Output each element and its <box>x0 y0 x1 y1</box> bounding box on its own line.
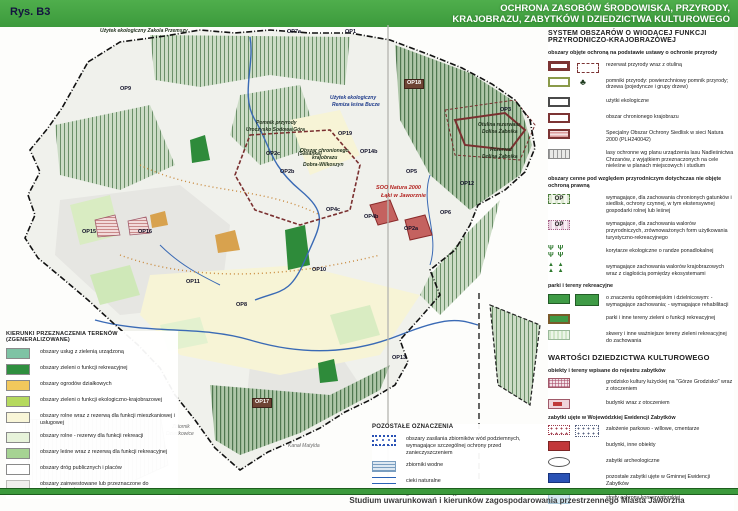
legend-label: obszary rolne wraz z rezerwą dla funkcji… <box>40 412 178 427</box>
legend-row: obszary zasilania zbiorników wód podziem… <box>372 435 548 456</box>
legend-subheader: parki i tereny rekreacyjne <box>548 283 734 290</box>
legend-swatch <box>6 412 30 423</box>
legend-swatch <box>548 399 570 409</box>
scanned-map-page: Rys. B3 OCHRONA ZASOBÓW ŚRODOWISKA, PRZY… <box>0 0 738 511</box>
legend-row: parki i inne tereny zieleni o funkcji re… <box>548 314 734 324</box>
legend-swatch <box>372 435 396 446</box>
legend-swatch: Ψ Ψ Ψ Ψ <box>548 247 570 257</box>
legend-label: obszary dróg publicznych i placów <box>40 464 122 472</box>
legend-swatch <box>548 378 570 388</box>
legend-label: obszary leśne wraz z rezerwą dla funkcji… <box>40 448 167 456</box>
legend-subheader: obszary cenne pod względem przyrodniczym… <box>548 176 734 190</box>
legend-label: obszar chronionego krajobrazu <box>606 113 679 121</box>
legend-swatch <box>548 61 570 71</box>
legend-label: budynki, inne obiekty <box>606 441 655 449</box>
legend-row: o znaczeniu ogólnomiejskim i dzielnicowy… <box>548 294 734 308</box>
legend-label: budynki wraz z otoczeniem <box>606 399 670 407</box>
legend-row: lasy ochronne wg planu urządzenia lasu N… <box>548 149 734 170</box>
legend-row: pozostałe zabytki ujęte w Gminnej Ewiden… <box>548 473 734 487</box>
legend-label: obszary ogrodów działkowych <box>40 380 112 388</box>
legend-label: obszary zieleni o funkcji ekologiczno-kr… <box>40 396 162 404</box>
legend-row: skwery i inne ważniejsze tereny zieleni … <box>548 330 734 344</box>
legend-row: obszary dróg publicznych i placów <box>6 464 178 475</box>
legend-swatch <box>548 425 570 435</box>
legend-label: korytarze ekologiczne o randze ponadloka… <box>606 247 713 255</box>
heritage-title: WARTOŚCI DZIEDZICTWA KULTUROWEGO <box>548 353 734 362</box>
legend-swatch: OP <box>548 194 570 204</box>
legend-swatch <box>6 448 30 459</box>
legend-swatch <box>548 314 570 324</box>
legend-row: obszary usług z zielenią urządzoną <box>6 348 178 359</box>
legend-label: lasy ochronne wg planu urządzenia lasu N… <box>606 149 734 170</box>
legend-row: Ψ Ψ Ψ Ψ korytarze ekologiczne o randze p… <box>548 247 734 257</box>
legend-label: o znaczeniu ogólnomiejskim i dzielnicowy… <box>606 294 734 308</box>
legend-swatch <box>548 97 570 107</box>
legend-swatch <box>548 129 570 139</box>
system-areas-items: obszary objęte ochroną na podstawie usta… <box>548 50 734 345</box>
legend-land-use: KIERUNKI PRZEZNACZENIA TERENÓW (ZGENERAL… <box>6 331 178 499</box>
legend-label: Specjalny Obszar Ochrony Siedlisk w siec… <box>606 129 734 143</box>
footer-green-bar <box>0 488 738 495</box>
legend-label: użytki ekologiczne <box>606 97 649 105</box>
legend-label: obszary usług z zielenią urządzoną <box>40 348 124 356</box>
legend-label: parki i inne tereny zieleni o funkcji re… <box>606 314 715 322</box>
figure-label: Rys. B3 <box>0 0 50 27</box>
header-bar: Rys. B3 OCHRONA ZASOBÓW ŚRODOWISKA, PRZY… <box>0 0 738 27</box>
legend-swatch: OP <box>548 220 570 230</box>
legend-row: pomniki przyrody: powierzchniowy pomnik … <box>548 77 734 91</box>
legend-swatch <box>6 348 30 359</box>
legend-swatch <box>548 330 570 340</box>
legend-row: obszar chronionego krajobrazu <box>548 113 734 123</box>
footer-caption: Studium uwarunkowań i kierunków zagospod… <box>300 496 734 505</box>
legend-swatch <box>372 477 396 484</box>
legend-subheader: obszary objęte ochroną na podstawie usta… <box>548 50 734 57</box>
legend-row: obszary leśne wraz z rezerwą dla funkcji… <box>6 448 178 459</box>
legend-row: budynki wraz z otoczeniem <box>548 399 734 409</box>
legend-label: skwery i inne ważniejsze tereny zieleni … <box>606 330 734 344</box>
legend-swatch <box>548 77 570 87</box>
legend-row: założenie parkowo - willowe, cmentarze <box>548 425 734 435</box>
page-title-line1: OCHRONA ZASOBÓW ŚRODOWISKA, PRZYRODY, <box>452 3 730 14</box>
legend-row: budynki, inne obiekty <box>548 441 734 451</box>
detached-fragment <box>490 305 540 405</box>
legend-swatch <box>548 113 570 123</box>
legend-label: wymagające zachowania walorów krajobrazo… <box>606 263 734 277</box>
legend-label: wymagające, dla zachowania walorów przyr… <box>606 220 734 241</box>
legend-swatch <box>6 432 30 443</box>
legend-label: grodzisko kultury łużyckiej na "Górze Gr… <box>606 378 734 392</box>
legend-subheader: obiekty i tereny wpisane do rejestru zab… <box>548 368 734 375</box>
legend-label: zabytki archeologiczne <box>606 457 660 465</box>
legend-label: rezerwat przyrody wraz z otuliną <box>606 61 682 69</box>
legend-row: Specjalny Obszar Ochrony Siedlisk w siec… <box>548 129 734 143</box>
legend-label: cieki naturalne <box>406 477 441 485</box>
legend-row: zbiorniki wodne <box>372 461 548 472</box>
legend-label: zbiorniki wodne <box>406 461 443 469</box>
legend-other-title: POZOSTAŁE OZNACZENIA <box>372 424 548 430</box>
legend-row: ▲ ▲ ▲ ▲ wymagające zachowania walorów kr… <box>548 263 734 277</box>
legend-row: obszary zieleni o funkcji rekreacyjnej <box>6 364 178 375</box>
legend-row: cieki naturalne <box>372 477 548 485</box>
legend-row: OP wymagające, dla zachowania chronionyc… <box>548 194 734 215</box>
legend-swatch <box>6 380 30 391</box>
legend-label: pomniki przyrody: powierzchniowy pomnik … <box>606 77 734 91</box>
system-areas-title: SYSTEM OBSZARÓW O WIODĄCEJ FUNKCJI PRZYR… <box>548 30 734 44</box>
legend-row: zabytki archeologiczne <box>548 457 734 467</box>
legend-subheader: zabytki ujęte w Wojewódzkiej Ewidencji Z… <box>548 415 734 422</box>
legend-land-use-items: obszary usług z zielenią urządzoną obsza… <box>6 348 178 494</box>
legend-row: obszary zieleni o funkcji ekologiczno-kr… <box>6 396 178 407</box>
legend-swatch <box>548 457 570 467</box>
legend-swatch <box>548 294 570 304</box>
legend-row: obszary rolne - rezerwy dla funkcji rekr… <box>6 432 178 443</box>
legend-swatch <box>548 149 570 159</box>
page-title: OCHRONA ZASOBÓW ŚRODOWISKA, PRZYRODY, KR… <box>452 0 738 27</box>
legend-row: OP wymagające, dla zachowania walorów pr… <box>548 220 734 241</box>
legend-swatch <box>6 364 30 375</box>
legend-label: obszary zasilania zbiorników wód podziem… <box>406 435 548 456</box>
legend-swatch: ▲ ▲ ▲ ▲ <box>548 263 570 273</box>
legend-row: grodzisko kultury łużyckiej na "Górze Gr… <box>548 378 734 392</box>
heritage-items: obiekty i tereny wpisane do rejestru zab… <box>548 368 734 504</box>
legend-right-panel: SYSTEM OBSZARÓW O WIODĄCEJ FUNKCJI PRZYR… <box>548 30 734 510</box>
legend-label: obszary zieleni o funkcji rekreacyjnej <box>40 364 128 372</box>
legend-label: wymagające, dla zachowania chronionych g… <box>606 194 734 215</box>
legend-swatch <box>548 473 570 483</box>
legend-swatch <box>548 441 570 451</box>
legend-swatch <box>6 396 30 407</box>
legend-label: obszary rolne - rezerwy dla funkcji rekr… <box>40 432 143 440</box>
legend-land-use-title: KIERUNKI PRZEZNACZENIA TERENÓW (ZGENERAL… <box>6 331 178 343</box>
legend-row: użytki ekologiczne <box>548 97 734 107</box>
legend-label: pozostałe zabytki ujęte w Gminnej Ewiden… <box>606 473 734 487</box>
legend-label: założenie parkowo - willowe, cmentarze <box>606 425 699 433</box>
legend-row: obszary ogrodów działkowych <box>6 380 178 391</box>
legend-row: obszary rolne wraz z rezerwą dla funkcji… <box>6 412 178 427</box>
legend-swatch <box>372 461 396 472</box>
legend-swatch <box>6 464 30 475</box>
legend-row: rezerwat przyrody wraz z otuliną <box>548 61 734 71</box>
